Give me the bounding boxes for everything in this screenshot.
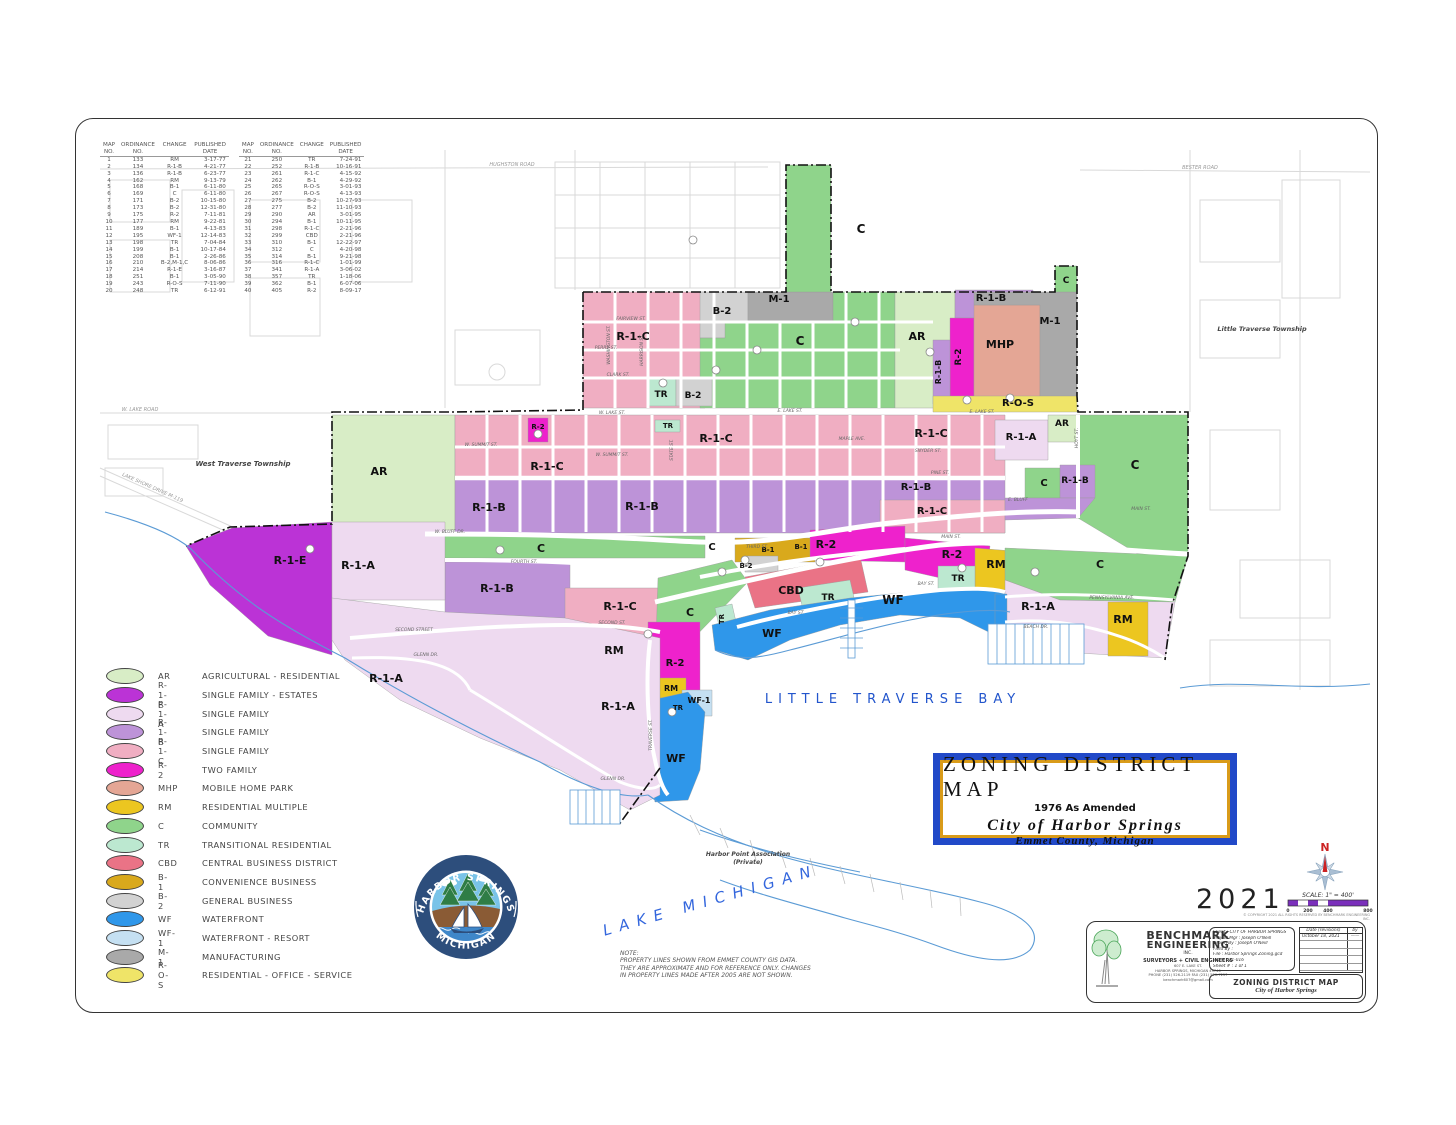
ordinance-row: 37341R-1-A3-06-02 [239, 267, 365, 274]
note-line: THEY ARE APPROXIMATE AND FOR REFERENCE O… [620, 965, 811, 972]
ordinance-table-left: MAPORDINANCECHANGEPUBLISHED NO.NO.DATE 1… [100, 142, 229, 295]
ordinance-row: 16210B-2,M-1,C8-06-86 [100, 260, 229, 267]
legend-item: TR TRANSITIONAL RESIDENTIAL [106, 835, 144, 854]
legend-item: R-1-E SINGLE FAMILY - ESTATES [106, 686, 144, 705]
sheet-subtitle: City of Harbor Springs [1210, 987, 1362, 994]
ordinance-row: 32299CBD2-21-96 [239, 233, 365, 240]
legend-item: AR AGRICULTURAL - RESIDENTIAL [106, 667, 144, 686]
legend-item: R-2 TWO FAMILY [106, 760, 144, 779]
legend-item: R-1-B SINGLE FAMILY [106, 723, 144, 742]
ordinance-row: 13198TR7-04-84 [100, 240, 229, 247]
legend-code: C [158, 821, 164, 831]
legend-swatch [106, 762, 144, 778]
legend-swatch [106, 967, 144, 983]
col-header [297, 149, 327, 156]
legend-description: AGRICULTURAL - RESIDENTIAL [202, 671, 340, 681]
revision-header-by: by [1348, 928, 1362, 933]
revision-header-date: Date (revisions) [1300, 928, 1348, 933]
ordinance-row: 21250TR7-24-91 [239, 156, 365, 163]
ordinance-row: 29290AR3-01-95 [239, 212, 365, 219]
ordinance-row: 38357TR1-18-06 [239, 274, 365, 281]
ordinance-row: 35314B-19-21-98 [239, 254, 365, 261]
legend-description: COMMUNITY [202, 821, 258, 831]
sheet-title-box: ZONING DISTRICT MAP City of Harbor Sprin… [1209, 974, 1363, 999]
ordinance-row: 27275B-210-27-93 [239, 198, 365, 205]
legend-swatch [106, 949, 144, 965]
legend-description: RESIDENTIAL - OFFICE - SERVICE [202, 970, 352, 980]
legend-swatch [106, 780, 144, 796]
drawing-sheet: B-2 M-1 R-1-C C C AR R-1-B R-2 R-1-B MHP… [0, 0, 1456, 1125]
ordinance-row: 26267R-O-S4-13-93 [239, 191, 365, 198]
engineer-title-block: BENCHMARK ENGINEERING INC. SURVEYORS + C… [1086, 921, 1366, 1003]
ordinance-row: 18251B-13-05-90 [100, 274, 229, 281]
legend-item: B-2 GENERAL BUSINESS [106, 891, 144, 910]
legend-item: CBD CENTRAL BUSINESS DISTRICT [106, 854, 144, 873]
ordinance-row: 23261R-1-C4-15-92 [239, 171, 365, 178]
legend-description: MOBILE HOME PARK [202, 783, 294, 793]
legend-item: WF-1 WATERFRONT - RESORT [106, 929, 144, 948]
legend-description: CONVENIENCE BUSINESS [202, 877, 317, 887]
legend-item: R-1-C SINGLE FAMILY [106, 742, 144, 761]
legend-code: R-O-S [158, 960, 169, 990]
col-header: NO. [118, 149, 158, 156]
ordinance-row: 24262B-14-29-92 [239, 178, 365, 185]
ordinance-row: 20248TR6-12-91 [100, 288, 229, 295]
legend-description: GENERAL BUSINESS [202, 896, 293, 906]
zoning-legend: AR AGRICULTURAL - RESIDENTIAL R-1-E SING… [106, 667, 144, 985]
note-line: PROPERTY LINES SHOWN FROM EMMET COUNTY G… [620, 957, 811, 964]
legend-description: TRANSITIONAL RESIDENTIAL [202, 840, 332, 850]
legend-item: MHP MOBILE HOME PARK [106, 779, 144, 798]
revision-entry-date: October 18, 2021 [1300, 934, 1348, 940]
ordinance-row: 4162RM9-13-79 [100, 178, 229, 185]
ordinance-row: 7171B-210-15-80 [100, 198, 229, 205]
ordinance-row: 19243R-O-S7-11-90 [100, 281, 229, 288]
sheet-title: ZONING DISTRICT MAP [1210, 978, 1362, 987]
col-header: CHANGE [297, 142, 327, 149]
copyright-line: © COPYRIGHT 2021 ALL RIGHTS RESERVED BY … [1240, 913, 1370, 921]
ordinance-row: 14199B-110-17-84 [100, 247, 229, 254]
ordinance-row: 31298R-1-C2-21-96 [239, 226, 365, 233]
col-header: PUBLISHED [327, 142, 365, 149]
legend-swatch [106, 687, 144, 703]
legend-code: B-2 [158, 891, 168, 911]
legend-code: WF-1 [158, 928, 175, 948]
legend-code: TR [158, 840, 170, 850]
ordinance-row: 1133RM3-17-77 [100, 156, 229, 163]
map-subtitle: 1976 As Amended [1034, 803, 1136, 814]
legend-swatch [106, 893, 144, 909]
ordinance-row: 8173B-212-31-80 [100, 205, 229, 212]
legend-description: TWO FAMILY [202, 765, 257, 775]
ordinance-row: 12195WF-112-14-83 [100, 233, 229, 240]
note-line: IN PROPERTY LINES MADE AFTER 2005 ARE NO… [620, 972, 811, 979]
ordinance-row: 28277B-211-10-93 [239, 205, 365, 212]
legend-code: CBD [158, 858, 177, 868]
ordinance-row: 9175R-27-11-81 [100, 212, 229, 219]
legend-description: SINGLE FAMILY [202, 746, 269, 756]
legend-description: RESIDENTIAL MULTIPLE [202, 802, 308, 812]
legend-item: WF WATERFRONT [106, 910, 144, 929]
col-header: ORDINANCE [118, 142, 158, 149]
legend-swatch [106, 743, 144, 759]
note-title: NOTE: [620, 950, 811, 957]
project-sheet-number: Sheet # : 1 of 1 [1213, 964, 1291, 970]
legend-swatch [106, 818, 144, 834]
legend-description: SINGLE FAMILY [202, 727, 269, 737]
legend-item: B-1 CONVENIENCE BUSINESS [106, 873, 144, 892]
legend-swatch [106, 855, 144, 871]
ordinance-row: 30294B-110-11-95 [239, 219, 365, 226]
legend-code: WF [158, 914, 172, 924]
col-header: DATE [327, 149, 365, 156]
legend-swatch [106, 706, 144, 722]
revision-entry-by: —— [1348, 934, 1362, 940]
project-info-box: Client : CITY OF HARBOR SPRINGS Project … [1209, 927, 1295, 971]
legend-code: B-1 [158, 872, 168, 892]
gis-note: NOTE: PROPERTY LINES SHOWN FROM EMMET CO… [620, 950, 811, 980]
project-client: Client : CITY OF HARBOR SPRINGS [1213, 930, 1291, 936]
ordinance-row: 3136R-1-B6-23-77 [100, 171, 229, 178]
legend-description: CENTRAL BUSINESS DISTRICT [202, 858, 338, 868]
revisions-table: Date (revisions)by October 18, 2021—— [1299, 927, 1363, 973]
ordinance-row: 2134R-1-B4-21-77 [100, 164, 229, 171]
ordinance-row: 22252R-1-B10-16-91 [239, 164, 365, 171]
col-header: NO. [100, 149, 118, 156]
ordinance-row: 25265R-O-S3-01-93 [239, 184, 365, 191]
col-header: CHANGE [158, 142, 191, 149]
ordinance-row: 39362B-16-07-06 [239, 281, 365, 288]
legend-item: R-O-S RESIDENTIAL - OFFICE - SERVICE [106, 966, 144, 985]
map-title: ZONING DISTRICT MAP [943, 752, 1227, 802]
ordinance-row: 17214R-1-E3-16-87 [100, 267, 229, 274]
city-name: City of Harbor Springs [987, 817, 1183, 835]
county-name: Emmet County, Michigan [1015, 835, 1154, 847]
legend-description: MANUFACTURING [202, 952, 281, 962]
legend-code: MHP [158, 783, 178, 793]
ordinance-row: 36316R-1-C1-01-99 [239, 260, 365, 267]
ordinance-row: 5168B-16-11-80 [100, 184, 229, 191]
col-header: NO. [257, 149, 297, 156]
ordinance-row: 6169C6-11-80 [100, 191, 229, 198]
ordinance-row: 40405R-28-09-17 [239, 288, 365, 295]
legend-item: C COMMUNITY [106, 817, 144, 836]
legend-code: R-2 [158, 760, 167, 780]
legend-code: RM [158, 802, 172, 812]
ordinance-row: 33310B-112-22-97 [239, 240, 365, 247]
map-year: 2021 [1196, 884, 1285, 915]
ordinance-row: 11189B-14-13-83 [100, 226, 229, 233]
legend-item: R-1-A SINGLE FAMILY [106, 704, 144, 723]
legend-swatch [106, 911, 144, 927]
ordinance-row: 34312C4-20-98 [239, 247, 365, 254]
legend-swatch [106, 874, 144, 890]
legend-swatch [106, 799, 144, 815]
col-header: ORDINANCE [257, 142, 297, 149]
ordinance-table-right: MAPORDINANCECHANGEPUBLISHED NO.NO.DATE 2… [239, 142, 365, 295]
legend-description: SINGLE FAMILY - ESTATES [202, 690, 318, 700]
legend-description: WATERFRONT [202, 914, 264, 924]
legend-swatch [106, 724, 144, 740]
col-header: NO. [239, 149, 257, 156]
col-header: PUBLISHED [191, 142, 229, 149]
legend-swatch [106, 930, 144, 946]
col-header: DATE [191, 149, 229, 156]
legend-description: WATERFRONT - RESORT [202, 933, 310, 943]
ordinance-row: 15208B-12-26-86 [100, 254, 229, 261]
col-header: MAP [100, 142, 118, 149]
map-title-block: ZONING DISTRICT MAP 1976 As Amended City… [933, 753, 1237, 845]
ordinance-amendment-tables: MAPORDINANCECHANGEPUBLISHED NO.NO.DATE 1… [100, 142, 364, 295]
ordinance-row: 10177RM9-22-81 [100, 219, 229, 226]
legend-description: SINGLE FAMILY [202, 709, 269, 719]
legend-swatch [106, 837, 144, 853]
legend-item: M-1 MANUFACTURING [106, 947, 144, 966]
legend-swatch [106, 668, 144, 684]
col-header: MAP [239, 142, 257, 149]
col-header [158, 149, 191, 156]
legend-item: RM RESIDENTIAL MULTIPLE [106, 798, 144, 817]
